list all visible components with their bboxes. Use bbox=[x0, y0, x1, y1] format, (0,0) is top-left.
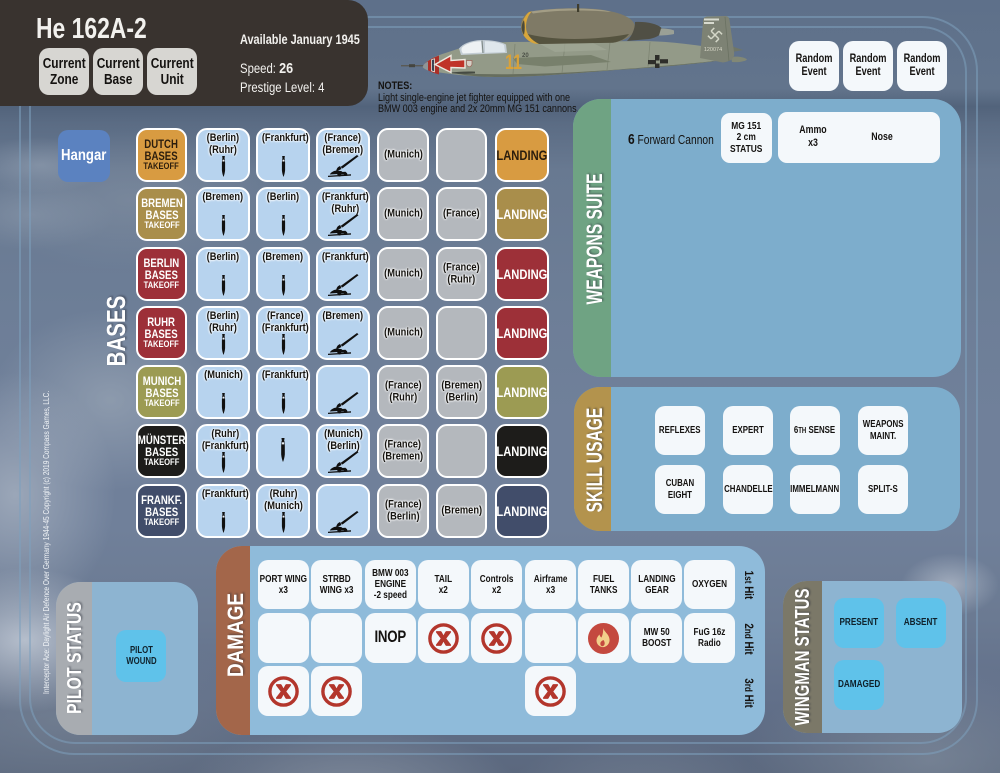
svg-text:20: 20 bbox=[522, 53, 529, 59]
svg-text:11: 11 bbox=[505, 51, 522, 74]
svg-text:120074: 120074 bbox=[704, 47, 722, 53]
